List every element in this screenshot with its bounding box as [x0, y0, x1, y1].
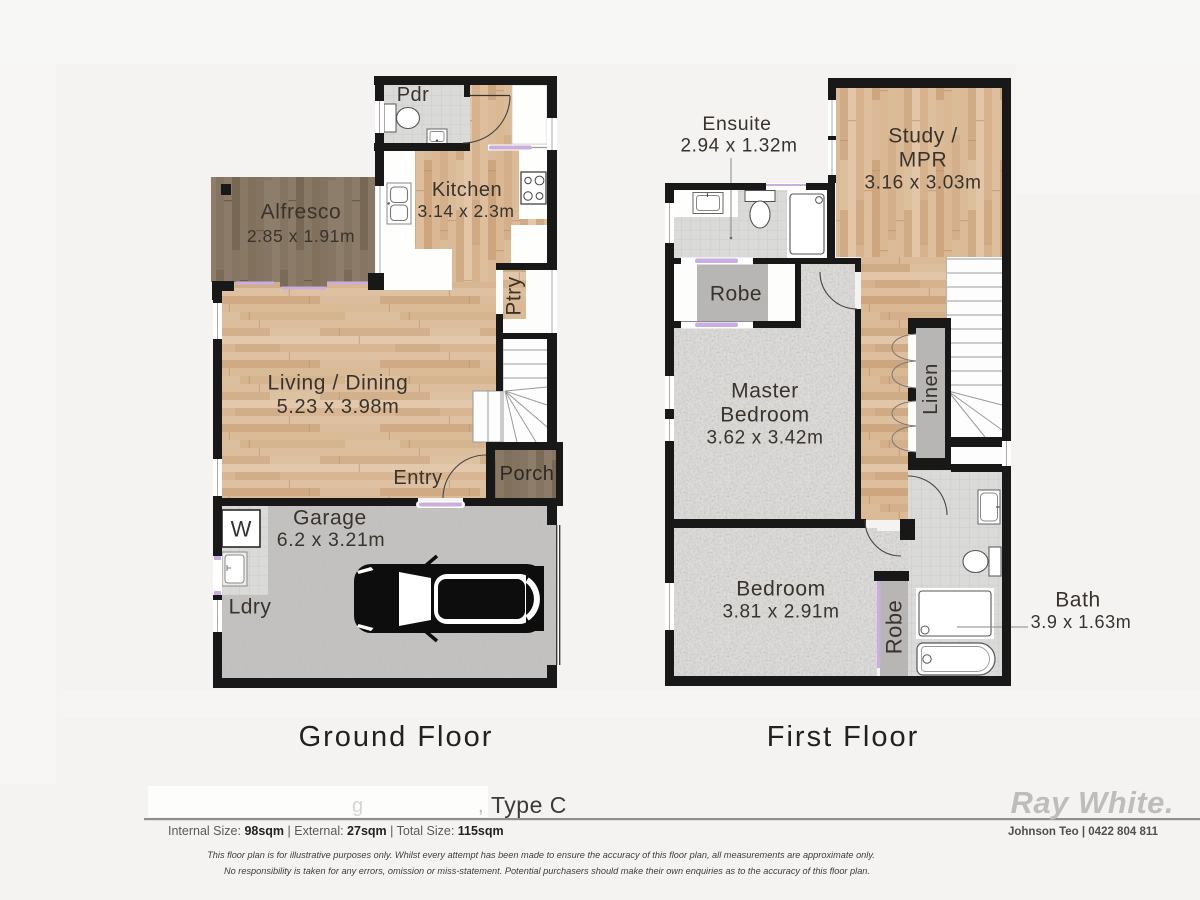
svg-text:Johnson Teo | 0422 804 811: Johnson Teo | 0422 804 811 [1008, 826, 1159, 838]
svg-text:Robe: Robe [882, 600, 907, 655]
svg-text:3.9 x 1.63m: 3.9 x 1.63m [1031, 612, 1132, 632]
svg-text:No responsibility is taken for: No responsibility is taken for any error… [224, 866, 870, 876]
svg-text:Ray White.: Ray White. [1011, 785, 1174, 820]
svg-text:Master: Master [731, 380, 799, 403]
svg-text:3.62 x 3.42m: 3.62 x 3.42m [706, 428, 823, 449]
svg-text:Ground Floor: Ground Floor [299, 721, 494, 753]
svg-text:Porch: Porch [500, 463, 555, 485]
svg-text:Linen: Linen [920, 363, 942, 414]
svg-text:3.16 x 3.03m: 3.16 x 3.03m [864, 173, 981, 194]
svg-text:Ensuite: Ensuite [702, 113, 771, 135]
svg-text:Bedroom: Bedroom [720, 404, 809, 427]
svg-text:W: W [231, 517, 252, 542]
svg-text:6.2 x 3.21m: 6.2 x 3.21m [277, 529, 386, 551]
svg-text:Internal Size: 98sqm | Externa: Internal Size: 98sqm | External: 27sqm |… [168, 824, 504, 838]
svg-text:2.94 x 1.32m: 2.94 x 1.32m [680, 136, 797, 157]
svg-text:Bedroom: Bedroom [736, 578, 825, 601]
svg-text:Kitchen: Kitchen [432, 179, 502, 201]
svg-text:2.85 x 1.91m: 2.85 x 1.91m [247, 226, 355, 246]
svg-text:Ldry: Ldry [229, 596, 272, 619]
svg-text:3.81 x 2.91m: 3.81 x 2.91m [722, 602, 839, 623]
svg-text:Study /: Study / [888, 125, 958, 148]
svg-text:Bath: Bath [1055, 589, 1101, 612]
svg-text:First Floor: First Floor [767, 721, 920, 753]
svg-text:5.23 x 3.98m: 5.23 x 3.98m [277, 396, 400, 418]
svg-text:This floor plan is for illustr: This floor plan is for illustrative purp… [207, 850, 875, 860]
svg-text:Entry: Entry [393, 467, 442, 489]
svg-text:Pdr: Pdr [397, 84, 430, 106]
svg-text:,: , [478, 795, 484, 817]
svg-text:Type C: Type C [491, 792, 567, 818]
svg-text:Garage: Garage [293, 507, 367, 530]
svg-text:MPR: MPR [899, 149, 947, 172]
svg-text:Living / Dining: Living / Dining [268, 372, 409, 395]
svg-text:Ptry: Ptry [503, 276, 526, 315]
svg-text:Robe: Robe [710, 283, 762, 306]
svg-text:g: g [352, 795, 363, 817]
svg-text:3.14 x 2.3m: 3.14 x 2.3m [418, 201, 515, 221]
svg-text:Alfresco: Alfresco [261, 201, 342, 224]
